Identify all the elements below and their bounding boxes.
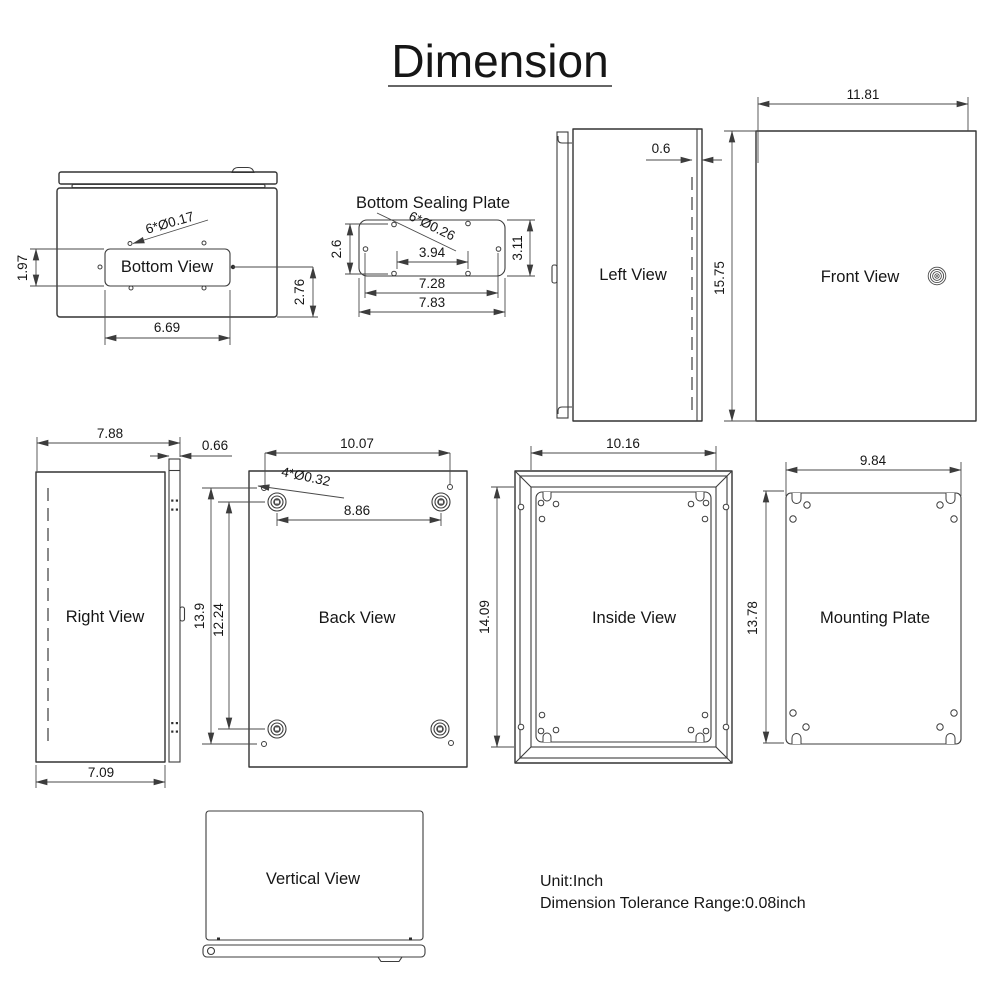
hinge-dots-bottom: [171, 722, 178, 733]
svg-text:7.88: 7.88: [97, 426, 123, 441]
mounting-plate-label: Mounting Plate: [820, 609, 930, 627]
svg-text:2.76: 2.76: [292, 279, 307, 305]
bottom-view: Bottom View 6*Ø0.17 1.97 6.69: [15, 168, 318, 346]
back-view: Back View 10.07 4*Ø0.32 8.86 13.9 12.24: [192, 436, 467, 767]
boss-icon: [431, 720, 449, 738]
drawing-canvas: Dimension Bottom View 6*Ø0.17 1.97: [0, 0, 1000, 1000]
dim-back-view-boss-width: 8.86: [277, 503, 441, 526]
svg-text:0.66: 0.66: [202, 438, 228, 453]
bottom-sealing-plate: Bottom Sealing Plate 6*Ø0.26 2.6 3.11: [329, 194, 535, 317]
left-view: Left View 0.6: [552, 129, 722, 421]
back-view-label: Back View: [319, 609, 396, 627]
svg-text:13.9: 13.9: [192, 603, 207, 629]
svg-text:8.86: 8.86: [344, 503, 370, 518]
boss-icon: [268, 493, 286, 511]
svg-text:3.11: 3.11: [510, 235, 525, 260]
bottom-view-hole-note: 6*Ø0.17: [144, 209, 196, 237]
lock-cylinder-icon: [208, 948, 215, 955]
dimension-drawing-page: Dimension Bottom View 6*Ø0.17 1.97: [0, 0, 1000, 1000]
tolerance-note: Dimension Tolerance Range:0.08inch: [540, 895, 806, 912]
svg-text:6.69: 6.69: [154, 320, 180, 335]
latch-keeper: [552, 265, 557, 283]
svg-text:12.24: 12.24: [211, 603, 226, 637]
svg-text:2.6: 2.6: [329, 240, 344, 259]
dim-mounting-plate-height: 13.78: [745, 491, 784, 743]
door-panel: [557, 132, 568, 418]
sealing-plate-hole-note: 6*Ø0.26: [406, 208, 457, 243]
boss-icon: [432, 493, 450, 511]
dim-bottom-view-offset: 2.76: [233, 267, 318, 317]
box-body: [57, 188, 277, 317]
svg-text:13.78: 13.78: [745, 601, 760, 635]
dim-right-view-depth: 7.88: [37, 426, 180, 471]
back-view-hole-note: 4*Ø0.32: [280, 464, 332, 489]
svg-text:7.09: 7.09: [88, 765, 114, 780]
sealing-plate-title: Bottom Sealing Plate: [356, 194, 510, 212]
footer-notes: Unit:Inch Dimension Tolerance Range:0.08…: [540, 873, 806, 912]
hinge-bump: [378, 957, 402, 962]
boss-icon: [268, 720, 286, 738]
left-view-label: Left View: [599, 266, 667, 284]
right-view-label: Right View: [66, 608, 145, 626]
svg-text:15.75: 15.75: [712, 261, 727, 295]
svg-text:0.6: 0.6: [652, 141, 671, 156]
svg-text:1.97: 1.97: [15, 255, 30, 281]
dim-bottom-view-height: 1.97: [15, 249, 104, 286]
dim-inside-view-height: 14.09: [477, 487, 514, 747]
edge-mark: [409, 938, 412, 941]
mounting-plate: Mounting Plate 9.84 13.78: [745, 453, 961, 744]
dim-right-view-body-depth: 7.09: [36, 765, 165, 788]
dim-sealing-plate-inner-width: 3.94: [397, 245, 468, 269]
back-view-hole-leader: [258, 486, 344, 498]
unit-note: Unit:Inch: [540, 873, 603, 890]
door-hook-top: [558, 136, 572, 143]
dim-left-view-door-offset: 0.6: [646, 141, 722, 160]
door-edge: [203, 945, 425, 957]
svg-text:3.94: 3.94: [419, 245, 446, 260]
lid: [59, 172, 277, 184]
svg-text:7.28: 7.28: [419, 276, 445, 291]
vertical-view-label: Vertical View: [266, 870, 360, 888]
vertical-view: Vertical View: [203, 811, 425, 962]
door-panel: [169, 459, 180, 762]
title-text: Dimension: [391, 35, 608, 87]
bottom-view-label: Bottom View: [121, 258, 213, 276]
svg-text:11.81: 11.81: [847, 87, 880, 102]
latch-bump: [180, 607, 185, 621]
inside-view: Inside View 10.16 14.09: [477, 436, 732, 763]
dim-inside-view-width: 10.16: [531, 436, 716, 470]
dim-mounting-plate-width: 9.84: [786, 453, 961, 496]
svg-text:10.07: 10.07: [340, 436, 374, 451]
front-view: Front View 11.81 15.75: [712, 87, 976, 421]
inside-view-label: Inside View: [592, 609, 676, 627]
front-view-label: Front View: [821, 268, 900, 286]
door-hook-bottom: [558, 407, 572, 414]
lid-seam: [72, 185, 265, 188]
dim-front-view-width: 11.81: [758, 87, 968, 163]
dim-back-view-boss-height: 12.24: [211, 502, 265, 729]
edge-mark: [217, 938, 220, 941]
svg-text:7.83: 7.83: [419, 295, 445, 310]
page-title: Dimension: [388, 35, 612, 87]
dim-front-view-height: 15.75: [712, 131, 757, 421]
hinge-dots-top: [171, 500, 178, 511]
svg-text:14.09: 14.09: [477, 600, 492, 634]
svg-text:9.84: 9.84: [860, 453, 887, 468]
svg-text:10.16: 10.16: [606, 436, 640, 451]
dim-sealing-plate-right-height: 3.11: [507, 220, 535, 276]
dim-right-view-door-thickness: 0.66: [150, 438, 232, 456]
lock-icon: [928, 267, 946, 285]
